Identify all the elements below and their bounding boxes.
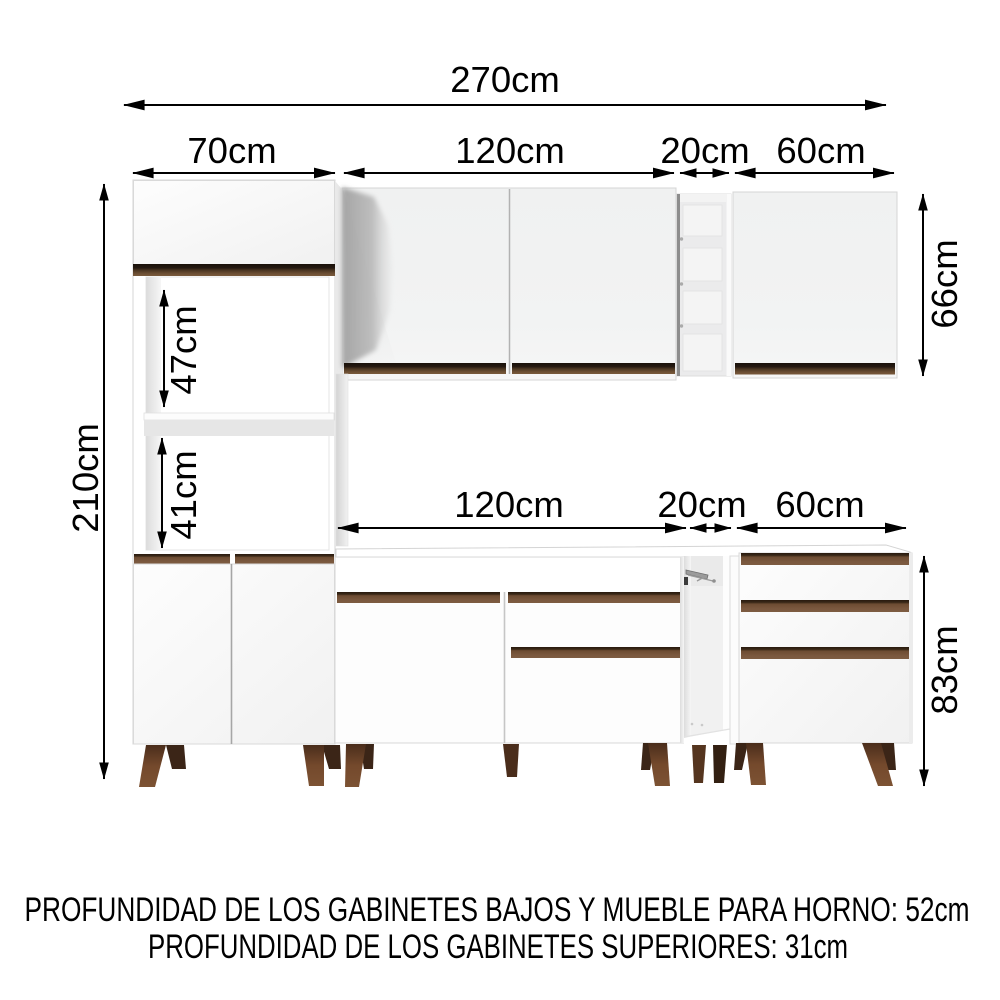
svg-text:66cm: 66cm: [924, 239, 965, 328]
svg-text:120cm: 120cm: [454, 484, 564, 525]
svg-text:60cm: 60cm: [776, 130, 865, 171]
svg-text:20cm: 20cm: [660, 130, 749, 171]
svg-text:70cm: 70cm: [187, 130, 276, 171]
svg-text:83cm: 83cm: [924, 625, 965, 714]
svg-text:41cm: 41cm: [163, 450, 204, 539]
svg-text:47cm: 47cm: [163, 305, 204, 394]
svg-text:210cm: 210cm: [65, 423, 106, 533]
svg-text:PROFUNDIDAD DE LOS GABINETES B: PROFUNDIDAD DE LOS GABINETES BAJOS Y MUE…: [25, 891, 970, 929]
svg-text:PROFUNDIDAD DE LOS GABINETES S: PROFUNDIDAD DE LOS GABINETES SUPERIORES:…: [148, 928, 848, 966]
svg-text:120cm: 120cm: [455, 130, 565, 171]
svg-text:270cm: 270cm: [450, 59, 560, 100]
svg-text:60cm: 60cm: [775, 484, 864, 525]
svg-text:20cm: 20cm: [657, 484, 746, 525]
